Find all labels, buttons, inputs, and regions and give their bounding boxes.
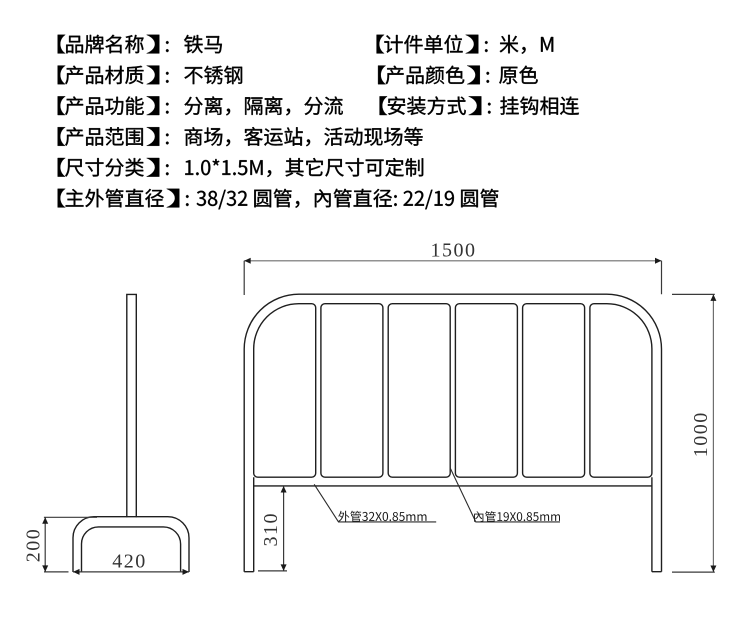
svg-text:1500: 1500 bbox=[431, 240, 477, 262]
svg-text:1000: 1000 bbox=[690, 411, 712, 457]
svg-text:420: 420 bbox=[112, 551, 147, 573]
svg-text:200: 200 bbox=[23, 528, 45, 563]
svg-text:310: 310 bbox=[260, 512, 282, 547]
